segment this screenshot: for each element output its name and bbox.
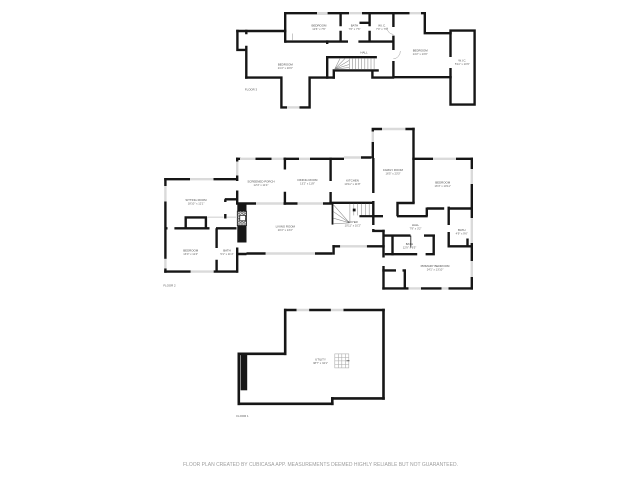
svg-text:7'6" x 7'6": 7'6" x 7'6" bbox=[348, 27, 360, 31]
svg-text:UTILITY: UTILITY bbox=[315, 358, 326, 362]
svg-text:FLOOR 1: FLOOR 1 bbox=[236, 414, 249, 418]
svg-text:12'6" x 7'6": 12'6" x 7'6" bbox=[312, 27, 326, 31]
svg-text:20'2" x 13'2": 20'2" x 13'2" bbox=[278, 228, 293, 232]
svg-text:FOYER: FOYER bbox=[348, 220, 358, 224]
svg-text:18'10" x 12'1": 18'10" x 12'1" bbox=[188, 202, 205, 206]
svg-text:FAMILY ROOM: FAMILY ROOM bbox=[383, 168, 403, 172]
svg-text:5'11" x 10'9": 5'11" x 10'9" bbox=[455, 62, 470, 66]
svg-text:12'4" x 11'4": 12'4" x 11'4" bbox=[254, 183, 269, 187]
svg-text:5'1" x 11'4": 5'1" x 11'4" bbox=[220, 252, 233, 256]
svg-text:16'3" x 10'11": 16'3" x 10'11" bbox=[434, 184, 450, 188]
svg-text:24'1" x 13'10": 24'1" x 13'10" bbox=[427, 268, 444, 272]
svg-text:13'2" x 11'8": 13'2" x 11'8" bbox=[300, 182, 315, 186]
svg-text:W.I.C.: W.I.C. bbox=[458, 59, 466, 63]
svg-text:SITTING ROOM: SITTING ROOM bbox=[185, 198, 207, 202]
svg-text:PRIMARY BEDROOM: PRIMARY BEDROOM bbox=[421, 264, 450, 268]
svg-text:21'2" x 20'0": 21'2" x 20'0" bbox=[278, 66, 293, 70]
svg-text:BEDROOM: BEDROOM bbox=[435, 181, 451, 185]
svg-text:HALL: HALL bbox=[360, 51, 368, 55]
svg-text:BATH: BATH bbox=[458, 228, 466, 232]
svg-text:10'11" x 11'8": 10'11" x 11'8" bbox=[344, 182, 360, 186]
svg-text:FLOOR 2: FLOOR 2 bbox=[163, 284, 176, 288]
svg-text:BEDROOM: BEDROOM bbox=[312, 24, 328, 28]
svg-text:BEDROOM: BEDROOM bbox=[183, 249, 199, 253]
svg-text:KITCHEN: KITCHEN bbox=[346, 179, 359, 183]
svg-text:W.I.C.: W.I.C. bbox=[378, 24, 386, 28]
svg-text:BATH: BATH bbox=[223, 249, 231, 253]
svg-text:SCREENED PORCH: SCREENED PORCH bbox=[247, 180, 274, 184]
svg-text:FLOOR PLAN CREATED BY CUBICASA: FLOOR PLAN CREATED BY CUBICASA APP. MEAS… bbox=[183, 462, 458, 468]
svg-text:BEDROOM: BEDROOM bbox=[278, 63, 294, 67]
svg-text:4'9" x 9'6": 4'9" x 9'6" bbox=[456, 232, 468, 236]
svg-text:16'5" x 23'3": 16'5" x 23'3" bbox=[385, 172, 400, 176]
svg-text:BEDROOM: BEDROOM bbox=[413, 49, 429, 53]
svg-text:7'0" x 7'6": 7'0" x 7'6" bbox=[376, 27, 388, 31]
svg-text:13'0" x 11'4": 13'0" x 11'4" bbox=[183, 252, 198, 256]
svg-text:14'2" x 13'0": 14'2" x 13'0" bbox=[413, 52, 428, 56]
svg-text:38'7" x 34'1": 38'7" x 34'1" bbox=[313, 361, 328, 365]
svg-text:BATH: BATH bbox=[406, 242, 414, 246]
svg-text:7'9" x 3'2": 7'9" x 3'2" bbox=[409, 227, 421, 231]
svg-text:BATH: BATH bbox=[351, 24, 359, 28]
svg-text:FLOOR 3: FLOOR 3 bbox=[245, 88, 258, 92]
svg-text:10'11" x 10'2": 10'11" x 10'2" bbox=[345, 224, 361, 228]
svg-text:HALL: HALL bbox=[412, 223, 420, 227]
svg-text:LIVING ROOM: LIVING ROOM bbox=[276, 225, 296, 229]
svg-text:12'9" x 6'5": 12'9" x 6'5" bbox=[403, 246, 417, 250]
svg-text:DINING ROOM: DINING ROOM bbox=[298, 178, 319, 182]
